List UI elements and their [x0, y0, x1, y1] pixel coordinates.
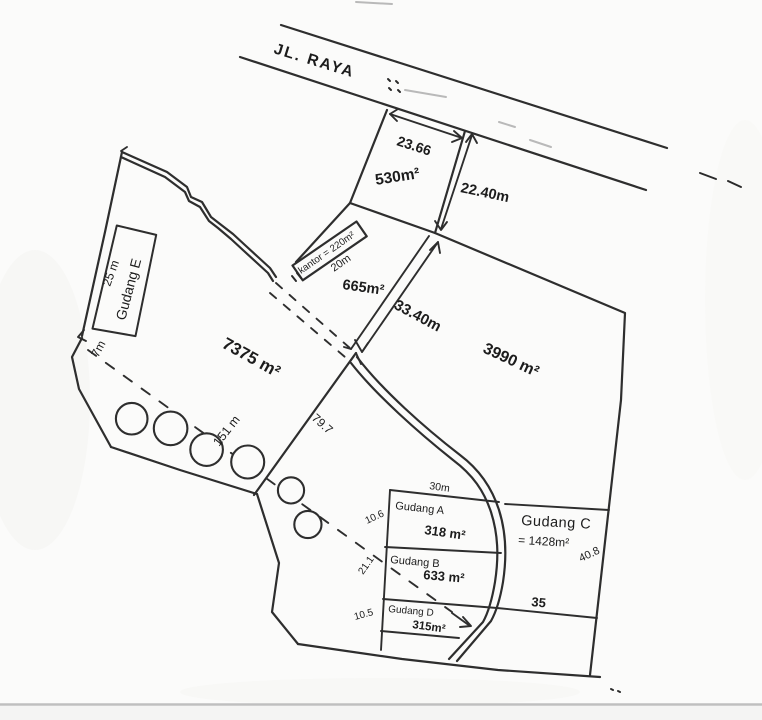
svg-text:= 1428m²: = 1428m² [518, 533, 570, 550]
svg-text:35: 35 [531, 594, 547, 610]
